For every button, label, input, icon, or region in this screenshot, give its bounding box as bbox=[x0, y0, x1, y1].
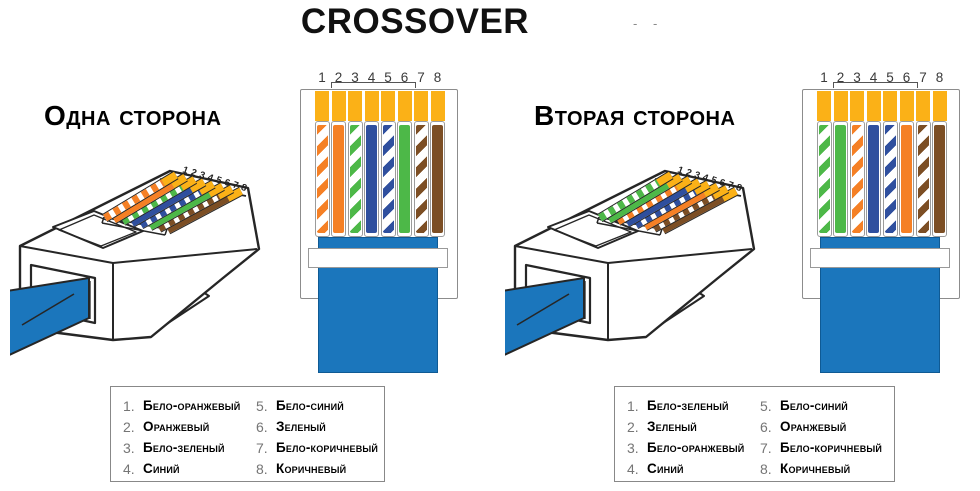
wire-color-legend: 1.Бело-зеленый2.Зеленый3.Бело-оранжевый4… bbox=[614, 386, 895, 482]
legend-item-number: 4. bbox=[627, 461, 643, 477]
pin-2-7-bracket bbox=[833, 82, 918, 88]
front-wire-pin-2 bbox=[331, 121, 346, 237]
pin-number-label: 7 bbox=[917, 71, 930, 85]
cable-3d bbox=[505, 278, 584, 356]
front-wire-pin-7 bbox=[414, 121, 429, 237]
legend-item-number: 8. bbox=[256, 461, 272, 477]
legend-item: 8.Коричневый bbox=[760, 458, 882, 479]
wire-color-fill bbox=[885, 125, 896, 233]
front-wire-pin-4 bbox=[364, 121, 379, 237]
wire-color-fill bbox=[399, 125, 410, 233]
gold-contact-pin bbox=[398, 91, 412, 121]
legend-column-2: 5.Бело-синий6.Зеленый7.Бело-коричневый8.… bbox=[256, 395, 378, 479]
legend-item-number: 1. bbox=[627, 398, 643, 414]
page-title: CROSSOVER bbox=[255, 2, 575, 42]
wire-color-fill bbox=[835, 125, 846, 233]
pin-number-label: 1 bbox=[818, 71, 831, 85]
legend-item-label: Зеленый bbox=[647, 419, 697, 434]
front-wire-pin-3 bbox=[348, 121, 363, 237]
legend-item: 6.Оранжевый bbox=[760, 416, 882, 437]
wire-color-fill bbox=[934, 125, 945, 233]
legend-item-number: 6. bbox=[760, 419, 776, 435]
pin-number-label: 8 bbox=[933, 71, 946, 85]
legend-item: 5.Бело-синий bbox=[760, 395, 882, 416]
wire-color-fill bbox=[918, 125, 929, 233]
legend-item-label: Синий bbox=[143, 461, 180, 476]
pin-number-label: 8 bbox=[431, 71, 444, 85]
pin-2-7-bracket bbox=[331, 82, 416, 88]
legend-item-label: Бело-коричневый bbox=[780, 440, 882, 455]
gold-contact-pin bbox=[850, 91, 864, 121]
legend-item-label: Оранжевый bbox=[780, 419, 846, 434]
legend-item-label: Коричневый bbox=[780, 461, 850, 476]
gold-contact-pin bbox=[900, 91, 914, 121]
wire-color-fill bbox=[868, 125, 879, 233]
legend-item-label: Бело-зеленый bbox=[647, 398, 729, 413]
legend-item: 1.Бело-зеленый bbox=[627, 395, 744, 416]
wire-color-fill bbox=[317, 125, 328, 233]
gold-contact-pin bbox=[817, 91, 831, 121]
legend-item: 6.Зеленый bbox=[256, 416, 378, 437]
wire-color-fill bbox=[852, 125, 863, 233]
gold-contact-pin bbox=[933, 91, 947, 121]
legend-item: 2.Зеленый bbox=[627, 416, 744, 437]
legend-item-label: Бело-синий bbox=[276, 398, 344, 413]
legend-item-number: 5. bbox=[256, 398, 272, 414]
legend-item-number: 1. bbox=[123, 398, 139, 414]
cable-3d bbox=[10, 278, 89, 356]
rj45-plug-3d-illustration: 12345678 bbox=[505, 148, 795, 383]
legend-item-number: 6. bbox=[256, 419, 272, 435]
legend-item: 3.Бело-зеленый bbox=[123, 437, 240, 458]
legend-item-label: Бело-оранжевый bbox=[143, 398, 240, 413]
gold-contact-pin bbox=[867, 91, 881, 121]
rj45-front-view: 12345678 bbox=[300, 71, 462, 375]
crossover-wiring-diagram: CROSSOVER - - Одна сторона Вторая сторон… bbox=[0, 0, 980, 491]
side-two-heading: Вторая сторона bbox=[534, 100, 735, 132]
legend-item-number: 2. bbox=[627, 419, 643, 435]
legend-item: 8.Коричневый bbox=[256, 458, 378, 479]
legend-item-number: 2. bbox=[123, 419, 139, 435]
legend-item-label: Оранжевый bbox=[143, 419, 209, 434]
gold-contact-pin bbox=[332, 91, 346, 121]
legend-item-label: Зеленый bbox=[276, 419, 326, 434]
legend-item: 5.Бело-синий bbox=[256, 395, 378, 416]
gold-contact-pin bbox=[365, 91, 379, 121]
legend-item-number: 7. bbox=[256, 440, 272, 456]
front-wire-pin-7 bbox=[916, 121, 931, 237]
strain-relief-band bbox=[308, 248, 448, 268]
legend-column-1: 1.Бело-зеленый2.Зеленый3.Бело-оранжевый4… bbox=[627, 395, 744, 479]
legend-item-label: Бело-коричневый bbox=[276, 440, 378, 455]
legend-item-number: 7. bbox=[760, 440, 776, 456]
legend-item: 3.Бело-оранжевый bbox=[627, 437, 744, 458]
front-wire-pin-6 bbox=[397, 121, 412, 237]
rj45-plug-3d-illustration: 12345678 bbox=[10, 148, 300, 383]
front-wire-pin-1 bbox=[315, 121, 330, 237]
legend-item-number: 3. bbox=[627, 440, 643, 456]
gold-contact-pin bbox=[883, 91, 897, 121]
wire-color-fill bbox=[366, 125, 377, 233]
legend-item-number: 5. bbox=[760, 398, 776, 414]
legend-item-label: Бело-зеленый bbox=[143, 440, 225, 455]
strain-relief-band bbox=[810, 248, 950, 268]
legend-item: 4.Синий bbox=[123, 458, 240, 479]
front-wire-pin-5 bbox=[883, 121, 898, 237]
wire-color-fill bbox=[901, 125, 912, 233]
gold-contact-pin bbox=[834, 91, 848, 121]
front-wire-pin-4 bbox=[866, 121, 881, 237]
wire-color-fill bbox=[432, 125, 443, 233]
side-one-heading: Одна сторона bbox=[44, 100, 221, 132]
front-wire-pin-3 bbox=[850, 121, 865, 237]
gold-contact-pin bbox=[431, 91, 445, 121]
legend-item-number: 4. bbox=[123, 461, 139, 477]
legend-item-label: Коричневый bbox=[276, 461, 346, 476]
legend-column-2: 5.Бело-синий6.Оранжевый7.Бело-коричневый… bbox=[760, 395, 882, 479]
legend-item: 7.Бело-коричневый bbox=[760, 437, 882, 458]
legend-item: 2.Оранжевый bbox=[123, 416, 240, 437]
front-wire-pin-2 bbox=[833, 121, 848, 237]
legend-item-number: 3. bbox=[123, 440, 139, 456]
legend-item-label: Бело-оранжевый bbox=[647, 440, 744, 455]
legend-item-label: Бело-синий bbox=[780, 398, 848, 413]
rj45-front-view: 12345678 bbox=[802, 71, 964, 375]
front-wire-pin-5 bbox=[381, 121, 396, 237]
legend-item: 7.Бело-коричневый bbox=[256, 437, 378, 458]
front-wire-pin-6 bbox=[899, 121, 914, 237]
legend-item-label: Синий bbox=[647, 461, 684, 476]
wire-color-legend: 1.Бело-оранжевый2.Оранжевый3.Бело-зелены… bbox=[110, 386, 385, 482]
artifact-dashes: - - bbox=[633, 16, 663, 31]
wire-color-fill bbox=[416, 125, 427, 233]
wire-color-fill bbox=[333, 125, 344, 233]
gold-contact-pin bbox=[381, 91, 395, 121]
gold-contact-pin bbox=[916, 91, 930, 121]
gold-contact-pin bbox=[315, 91, 329, 121]
gold-contact-pin bbox=[414, 91, 428, 121]
wire-color-fill bbox=[350, 125, 361, 233]
wire-color-fill bbox=[383, 125, 394, 233]
pin-number-label: 7 bbox=[415, 71, 428, 85]
pin-number-label: 1 bbox=[316, 71, 329, 85]
legend-item: 4.Синий bbox=[627, 458, 744, 479]
gold-contact-pin bbox=[348, 91, 362, 121]
wire-color-fill bbox=[819, 125, 830, 233]
front-wire-pin-8 bbox=[430, 121, 445, 237]
front-wire-pin-1 bbox=[817, 121, 832, 237]
legend-column-1: 1.Бело-оранжевый2.Оранжевый3.Бело-зелены… bbox=[123, 395, 240, 479]
legend-item: 1.Бело-оранжевый bbox=[123, 395, 240, 416]
front-wire-pin-8 bbox=[932, 121, 947, 237]
legend-item-number: 8. bbox=[760, 461, 776, 477]
